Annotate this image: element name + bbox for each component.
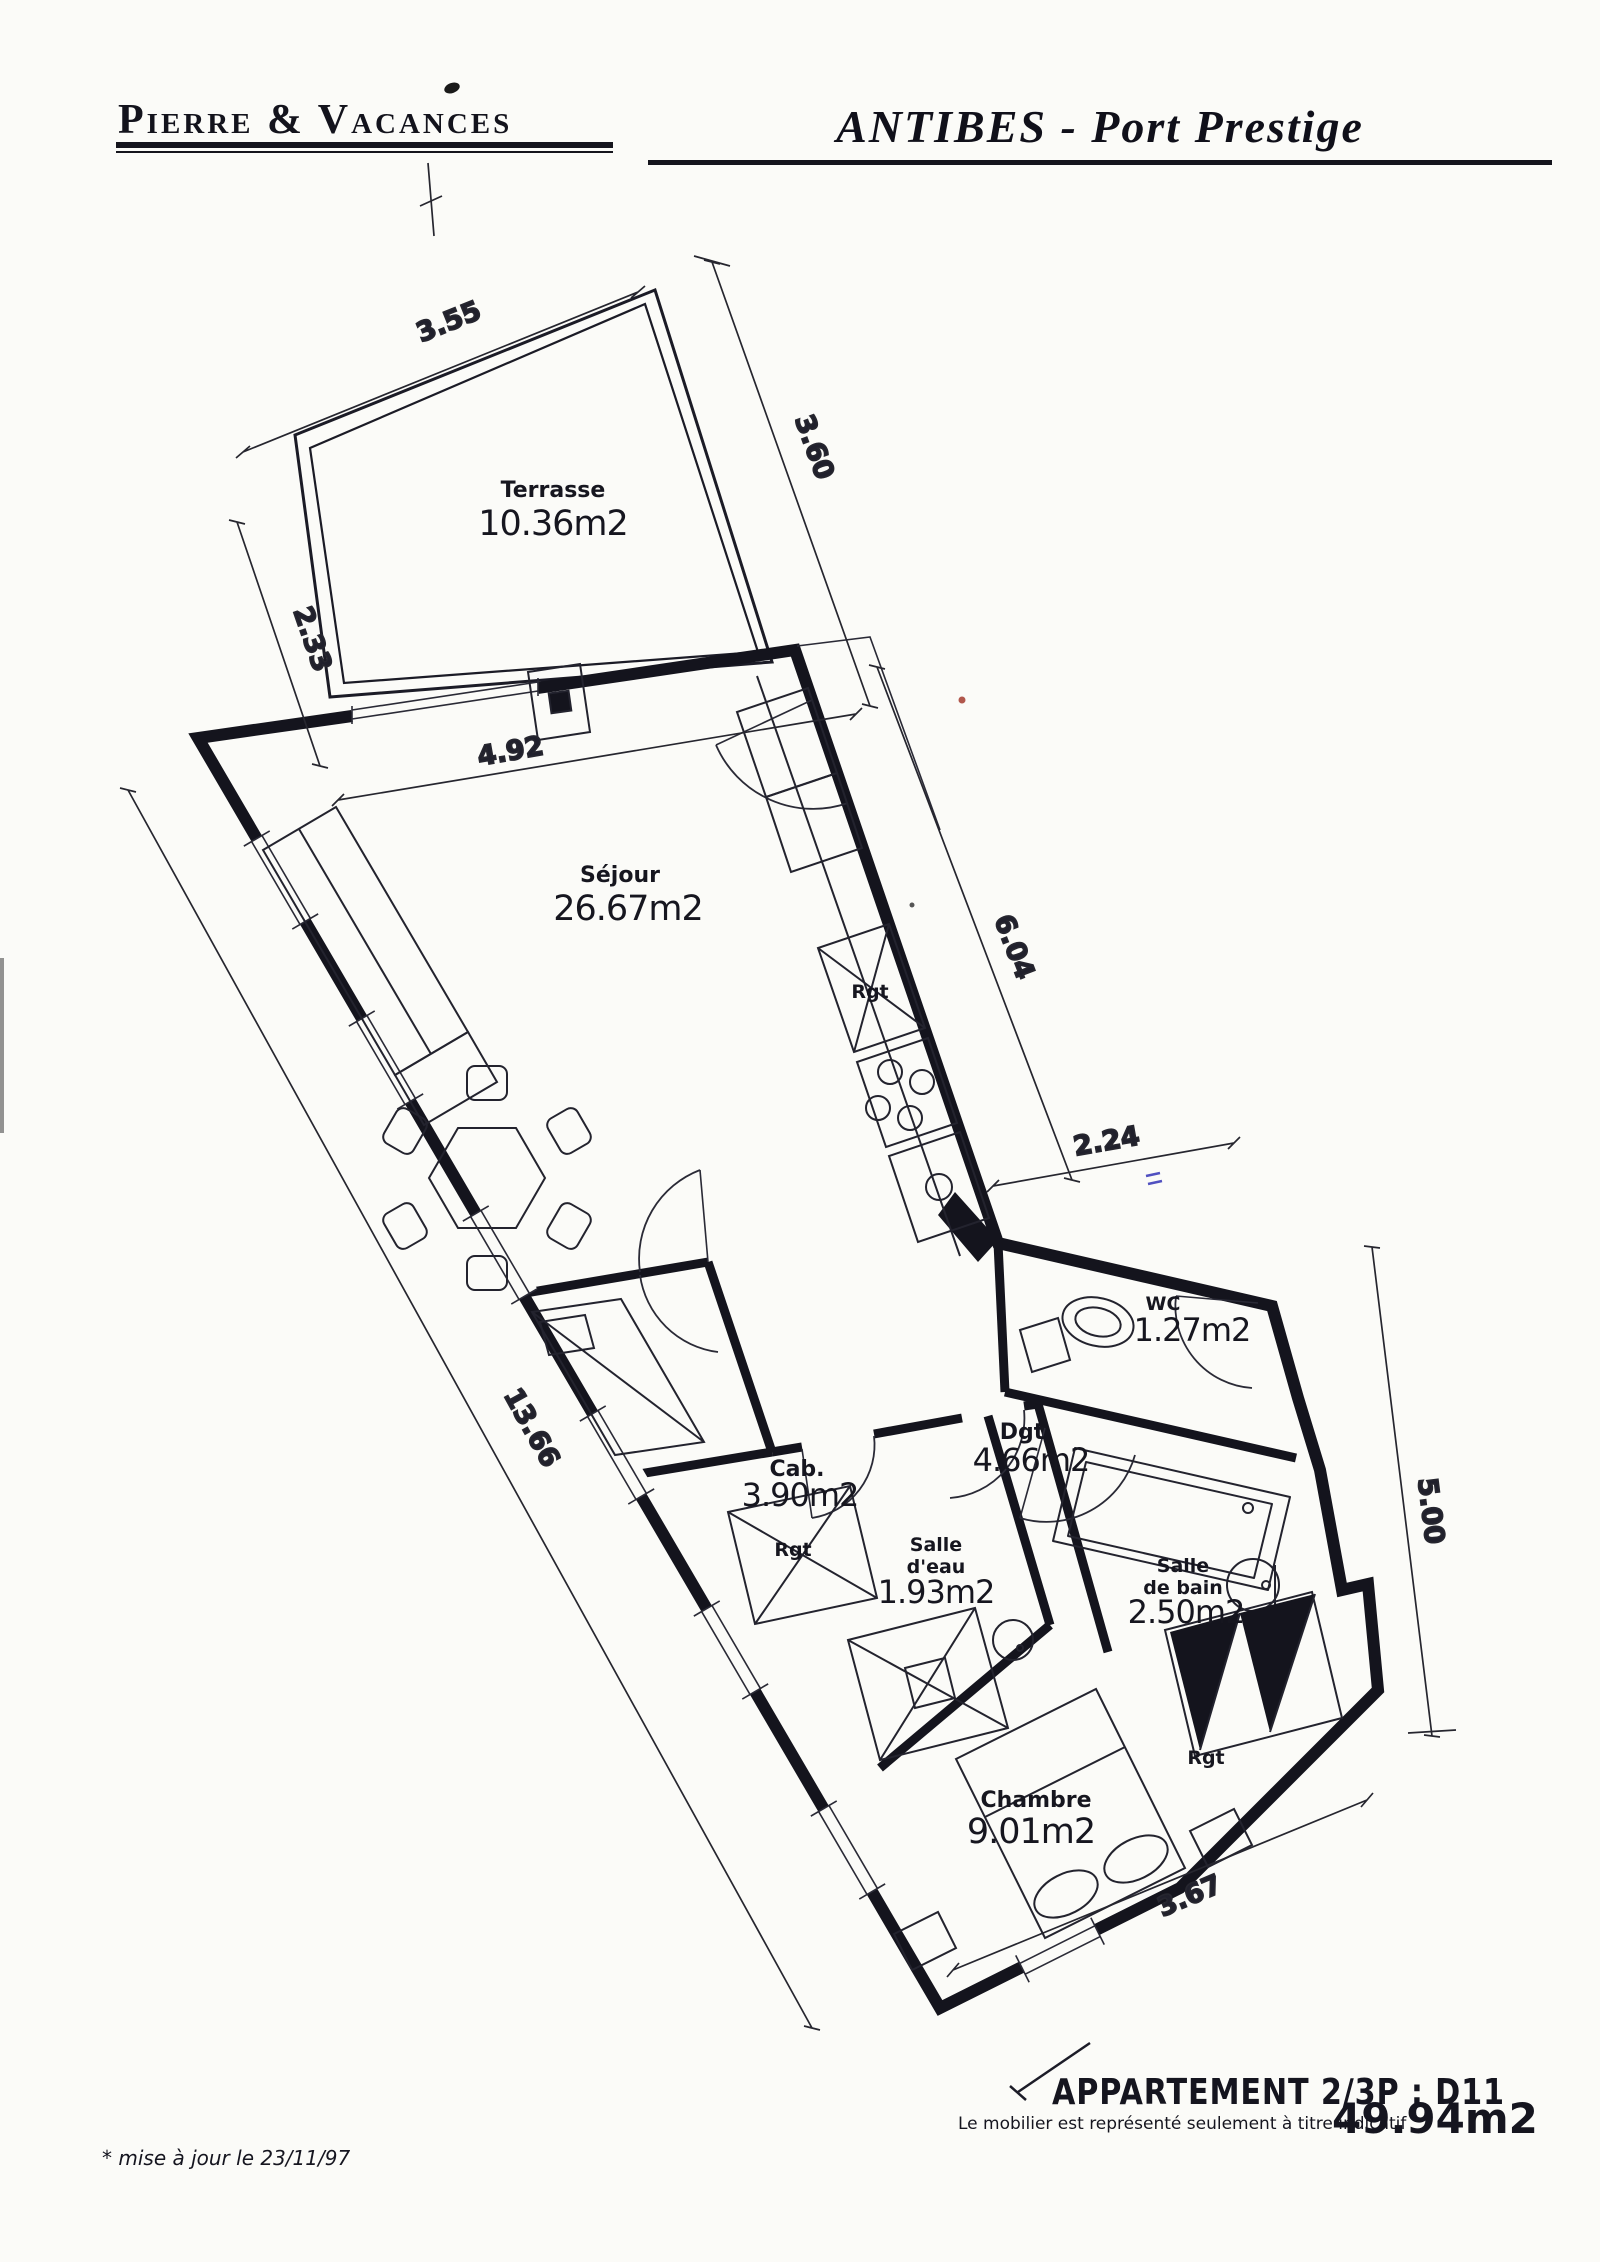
- room-label-sejour-name: Séjour: [580, 863, 660, 888]
- room-label-salle-bain-area: 2.50m2: [1128, 1593, 1245, 1631]
- window-icon: [811, 1801, 885, 1899]
- dim-terrace-top: 3.55: [236, 286, 645, 458]
- sejour-hall-door-arc: [639, 1170, 708, 1272]
- dim-kitchen-wall: 6.04: [869, 665, 1080, 1182]
- dim-label: 2.24: [1071, 1121, 1142, 1163]
- storage-label-kitchen: Rgt: [851, 981, 888, 1003]
- room-label-terrasse-name: Terrasse: [501, 478, 606, 503]
- room-label-chambre-area: 9.01m2: [967, 1812, 1095, 1852]
- extension-line-top: [420, 163, 442, 236]
- room-label-salle-eau-name1: Salle: [910, 1534, 962, 1556]
- room-label-salle-bain-name1: Salle: [1157, 1555, 1209, 1577]
- dim-label: 3.60: [788, 410, 840, 483]
- room-label-cab-area: 3.90m2: [742, 1476, 859, 1514]
- dim-label: 2.33: [287, 603, 338, 676]
- room-label-wc-area: 1.27m2: [1134, 1311, 1251, 1349]
- window-icon: [694, 1601, 768, 1699]
- floor-plan-svg: 3.55 3.60 2.33 4.92 6.04 2.24: [0, 0, 1600, 2262]
- storage-label-cab: Rgt: [774, 1539, 811, 1561]
- room-label-sejour-area: 26.67m2: [553, 889, 703, 929]
- entry-column: [528, 664, 590, 740]
- dim-label: 3.55: [412, 295, 485, 349]
- cab-door-arc: [640, 1275, 718, 1352]
- floor-plan-page: Pierre & Vacances ANTIBES - Port Prestig…: [0, 0, 1600, 2262]
- dim-left-wall: 13.66: [120, 788, 820, 2030]
- room-label-chambre-name: Chambre: [980, 1788, 1091, 1813]
- kitchen-counter: [737, 676, 960, 1256]
- scan-artifacts: [0, 81, 1162, 1184]
- dim-label: 13.66: [497, 1383, 566, 1473]
- total-area: 49.94m2: [1332, 2094, 1538, 2143]
- room-label-dgt-area: 4.66m2: [973, 1441, 1090, 1479]
- window-icon: [1016, 1918, 1105, 1982]
- dim-label: 5.00: [1411, 1476, 1450, 1546]
- left-wall-windows: [244, 831, 1104, 1982]
- room-label-salle-eau-area: 1.93m2: [878, 1573, 995, 1611]
- dim-wc-width: 2.24: [987, 1121, 1240, 1192]
- bay-window-icon: [352, 678, 538, 724]
- toilet-icon: [1020, 1291, 1138, 1372]
- dim-label: 4.92: [475, 731, 546, 773]
- room-label-terrasse-area: 10.36m2: [478, 504, 628, 544]
- storage-label-wardrobe: Rgt: [1187, 1747, 1224, 1769]
- dim-label: 6.04: [988, 910, 1041, 983]
- revision-note: * mise à jour le 23/11/97: [102, 2146, 350, 2170]
